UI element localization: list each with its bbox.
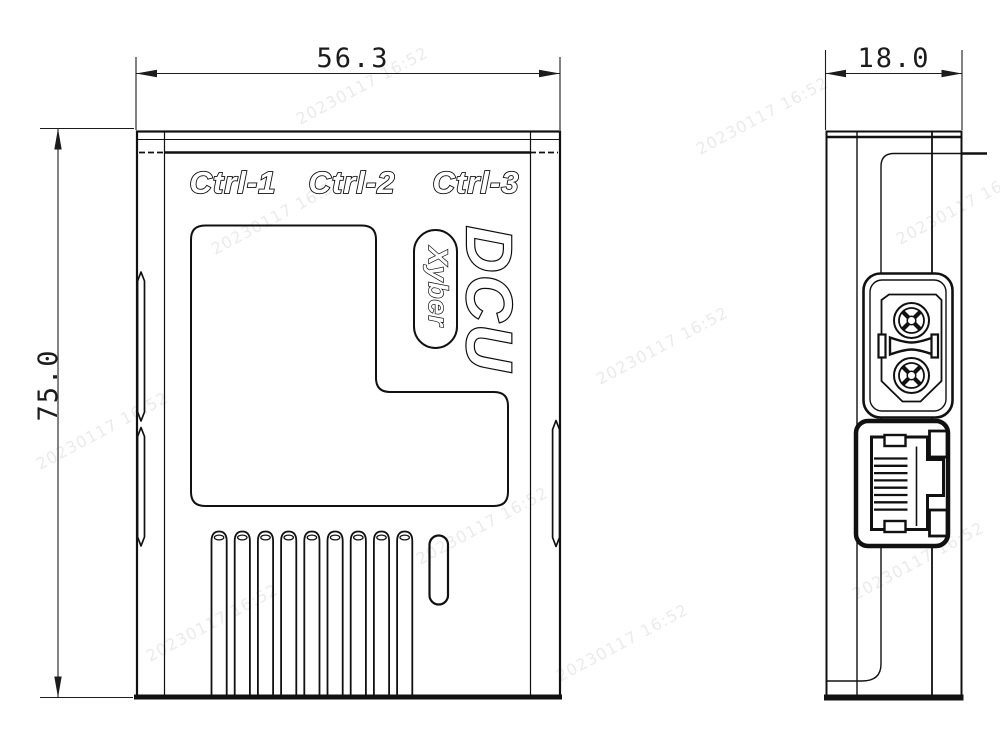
brand-text: Xyber [423,245,453,328]
vent-slot-caps [214,535,409,540]
left-edge-clip-upper [138,272,145,421]
arrowhead-left [826,70,847,77]
port-label-ctrl3: Ctrl-3 [433,165,520,200]
side-view [824,132,987,698]
watermark-text: 20230117 16:52 [593,303,731,389]
watermark-text: 20230117 16:52 [693,73,831,159]
technical-drawing-canvas: 20230117 16:52 20230117 16:52 20230117 1… [0,0,1000,737]
vent-slot [397,532,412,697]
vent-slot [328,532,343,697]
cad-drawing-page: 20230117 16:52 20230117 16:52 20230117 1… [0,0,1000,737]
arrowhead-bottom [54,677,61,698]
dim-value-height: 75.0 [33,348,64,421]
power-connector [864,274,953,418]
vent-slot [258,532,273,697]
front-view [134,132,562,698]
rj45-key-tab-top [885,435,906,446]
vent-slot [304,532,319,697]
vent-slot [281,532,296,697]
dim-value-depth: 18.0 [857,43,930,74]
right-edge-bump [553,421,560,547]
vent-slot [351,532,366,697]
watermark-text: 20230117 16:52 [553,600,691,686]
front-body-outline [137,132,560,698]
port-label-ctrl2: Ctrl-2 [309,165,396,200]
arrowhead-right [539,70,560,77]
power-terminal-negative [894,358,929,393]
arrowhead-top [54,129,61,150]
arrowhead-left [136,70,157,77]
front-view-labels: Ctrl-1 Ctrl-2 Ctrl-3 DCU Xyber [190,165,525,374]
watermark-text: 20230117 16:52 [893,163,1000,249]
dimension-lines [40,50,962,698]
arrowhead-right [942,70,963,77]
rj45-key-tab-bottom [885,521,906,532]
dim-value-width: 56.3 [316,43,389,74]
vent-slot [374,532,389,697]
ethernet-port [856,421,948,546]
logo-text: DCU [453,226,525,374]
rj45-shield-tab-top [930,431,948,457]
power-terminal-positive [894,303,929,338]
rj45-shield-tab-bottom [930,510,948,536]
port-label-ctrl1: Ctrl-1 [190,165,277,200]
left-edge-clip-lower [138,428,145,547]
